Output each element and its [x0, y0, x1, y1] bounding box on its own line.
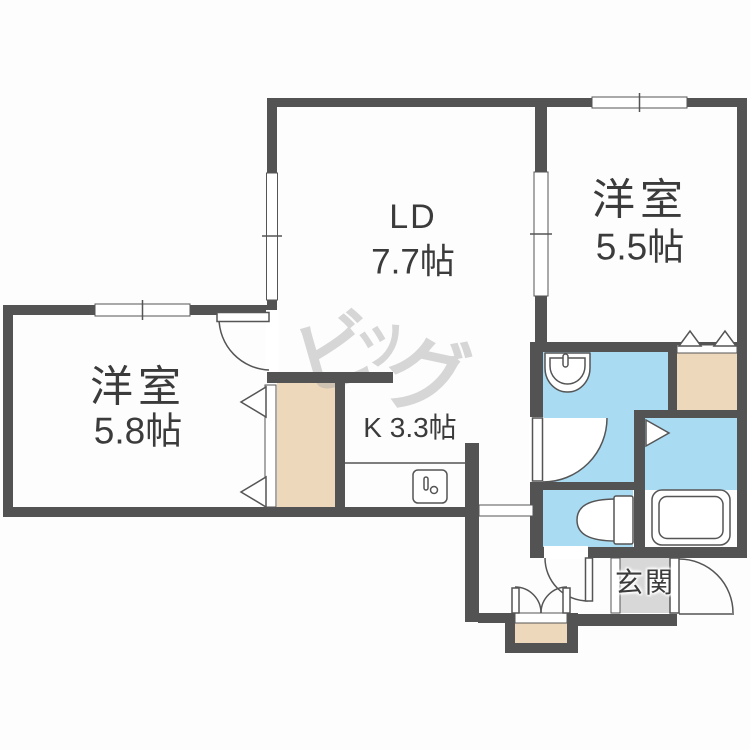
- washroom-floor-lower: [543, 410, 636, 482]
- wall-ld-left: [267, 98, 277, 383]
- wall-top-outer: [267, 98, 747, 107]
- toilet-floor: [543, 490, 633, 548]
- washroom-floor: [543, 352, 670, 410]
- wall-ld-bedroom-right-divider: [535, 107, 547, 342]
- wall-bath-closet-bottom: [634, 410, 747, 418]
- ld-bedroom-door: [217, 313, 269, 371]
- hall-threshold: [479, 505, 533, 516]
- bathroom-floor: [645, 418, 737, 490]
- shoe-closet-doors: [512, 587, 570, 613]
- wall-closet-kitchen-divider: [335, 373, 345, 517]
- wall-washroom-toilet-divider: [530, 482, 645, 490]
- wall-closet-right-left: [668, 352, 677, 410]
- wall-entrance-bottom: [567, 614, 677, 626]
- bedroom-right-name: 洋室: [592, 180, 688, 223]
- bedroom-left-size: 5.8帖: [94, 413, 182, 450]
- floorplan: ビ ッ グ: [0, 0, 750, 750]
- ld-room-size: 7.7帖: [371, 245, 455, 280]
- toilet-door: [545, 558, 593, 601]
- closet-left-door-triangles: [241, 387, 266, 507]
- wall-ld-closet-top: [267, 372, 393, 383]
- kitchen-label: K 3.3帖: [363, 414, 456, 442]
- wall-right-outer: [737, 98, 747, 557]
- closet-bedroom-right-floor: [677, 353, 737, 410]
- wall-kitchen-right: [465, 443, 479, 622]
- wall-shoe-closet-bottom: [505, 643, 578, 653]
- bedroom-left-name: 洋室: [90, 367, 186, 410]
- shoe-closet-floor: [515, 623, 567, 643]
- kitchen-sink: [413, 470, 447, 503]
- wall-corridor-right: [530, 342, 543, 558]
- entrance-label: 玄関: [615, 569, 675, 597]
- wall-left-outer: [3, 305, 13, 517]
- wall-sanitary-bottom: [533, 547, 747, 558]
- closet-left-door: [265, 385, 276, 507]
- shoe-closet-opening: [515, 613, 567, 623]
- wall-bottom-outer: [3, 507, 478, 517]
- wall-bedroom-left-top: [3, 305, 277, 315]
- wall-bedroom-right-bottom: [530, 342, 747, 352]
- entrance-door: [670, 558, 734, 614]
- ld-room-name: LD: [389, 200, 436, 234]
- bathtub: [652, 490, 730, 545]
- bedroom-right-size: 5.5帖: [596, 229, 684, 266]
